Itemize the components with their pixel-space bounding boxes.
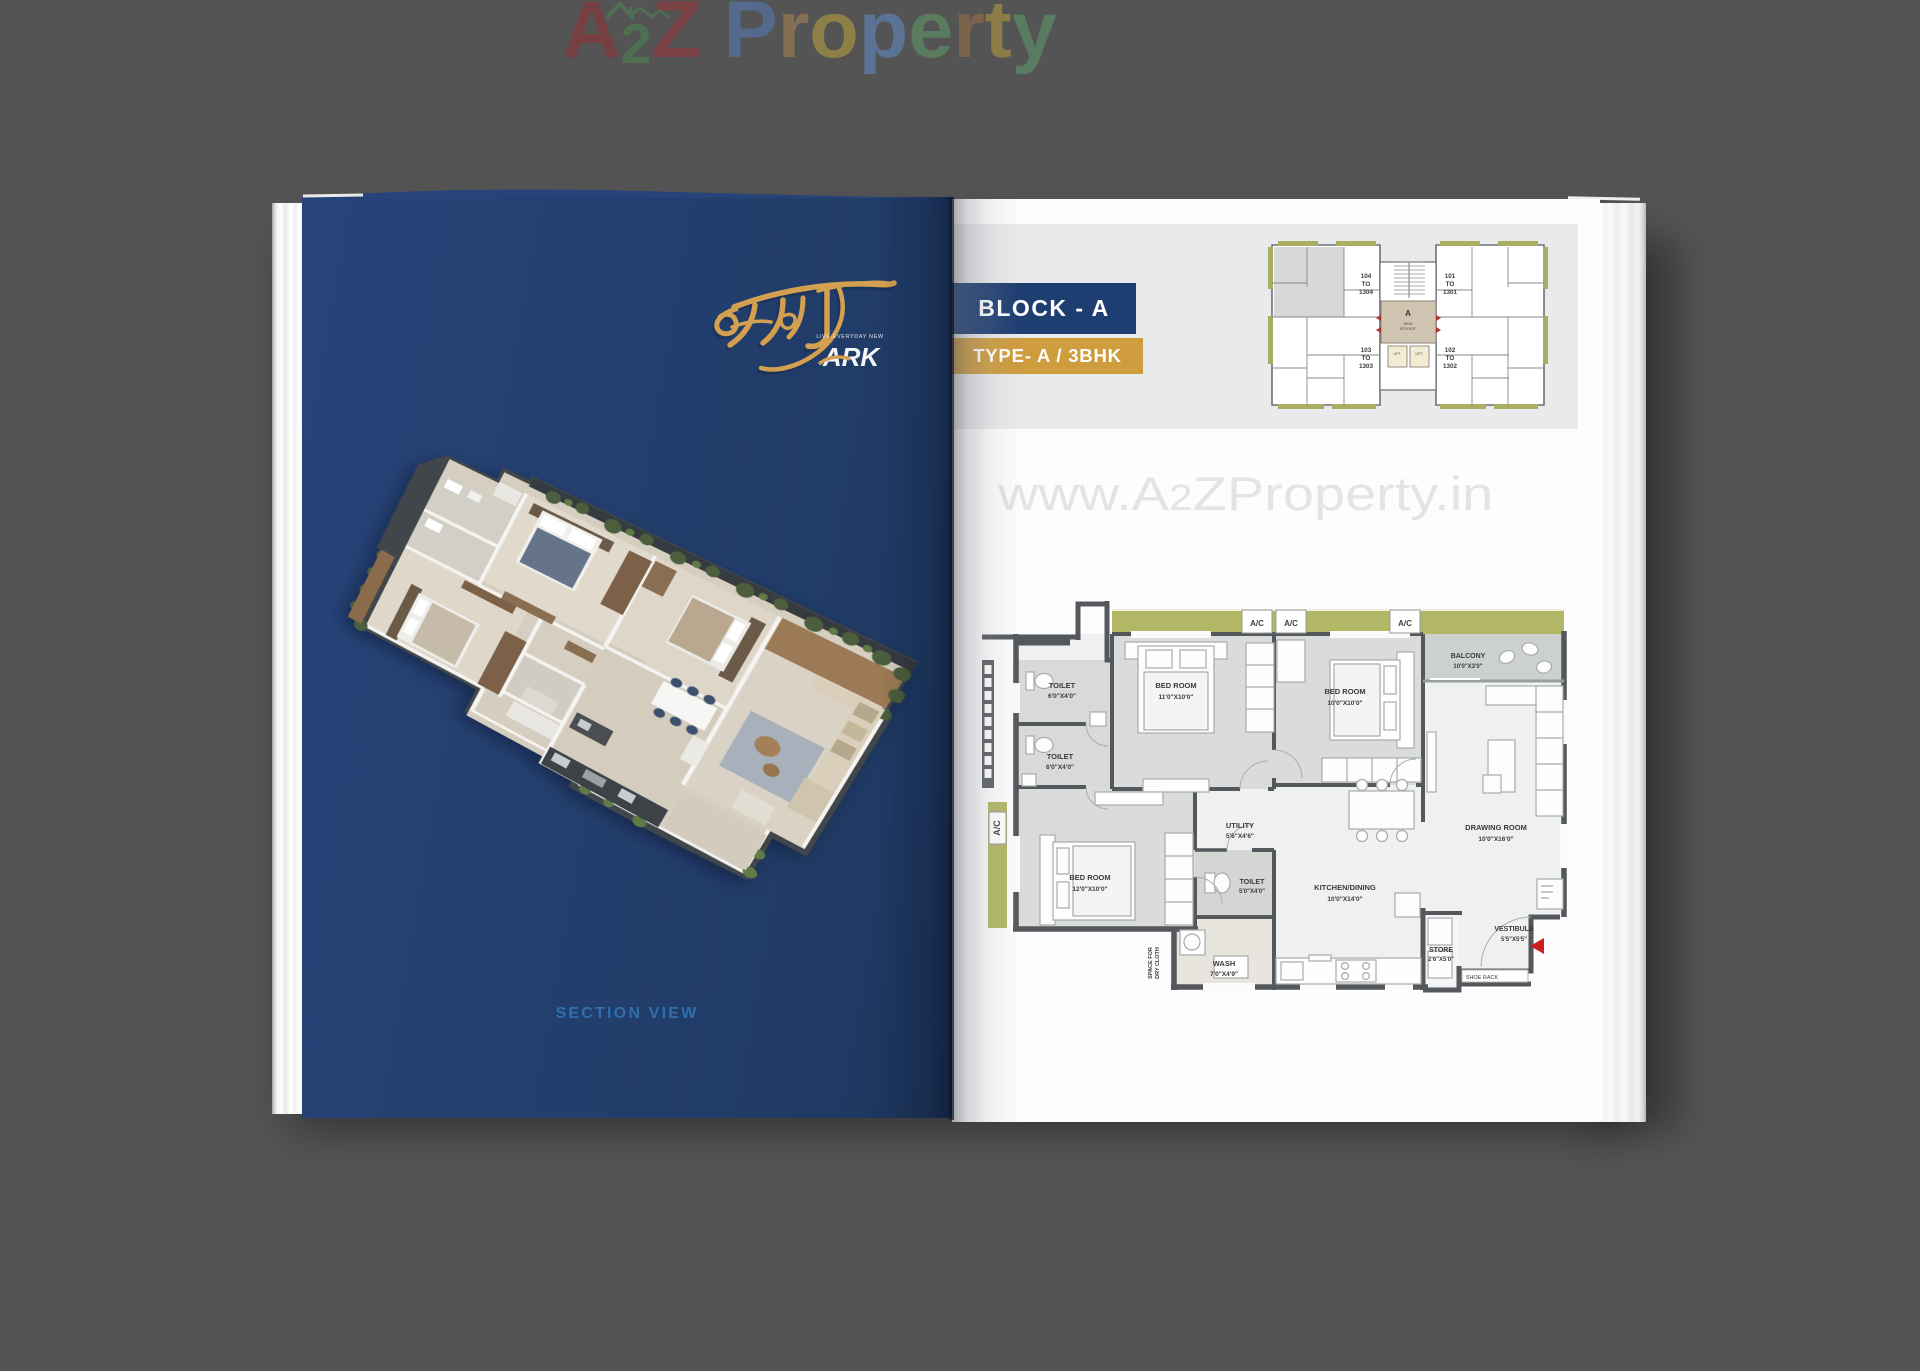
svg-text:2'6"X5'0": 2'6"X5'0" — [1428, 957, 1454, 963]
svg-text:9'0"X10'0": 9'0"X10'0" — [1400, 327, 1417, 331]
svg-text:6'0"X4'0": 6'0"X4'0" — [1048, 693, 1076, 700]
svg-text:A/C: A/C — [1398, 619, 1412, 628]
svg-text:TOILET: TOILET — [1049, 681, 1076, 690]
svg-text:WASH: WASH — [1213, 959, 1236, 968]
svg-text:103: 103 — [1361, 347, 1372, 354]
svg-text:10'0"X10'0": 10'0"X10'0" — [1327, 700, 1362, 707]
svg-text:104: 104 — [1361, 273, 1372, 280]
svg-text:7'0"X4'9": 7'0"X4'9" — [1210, 971, 1238, 978]
svg-text:LIVE EVERYDAY NEW: LIVE EVERYDAY NEW — [816, 334, 884, 340]
svg-text:TO: TO — [1446, 281, 1455, 288]
svg-text:SPACE FOR: SPACE FOR — [1148, 947, 1154, 979]
svg-text:5'6"X4'6": 5'6"X4'6" — [1226, 833, 1254, 840]
svg-text:BED ROOM: BED ROOM — [1155, 681, 1196, 690]
svg-text:10'0"X14'0": 10'0"X14'0" — [1327, 896, 1362, 903]
svg-text:KITCHEN/DINING: KITCHEN/DINING — [1314, 883, 1376, 892]
svg-text:A: A — [1405, 309, 1411, 318]
svg-text:1301: 1301 — [1443, 289, 1458, 296]
svg-text:TO: TO — [1446, 355, 1455, 362]
svg-text:BED ROOM: BED ROOM — [1324, 687, 1365, 696]
svg-text:BALCONY: BALCONY — [1451, 653, 1486, 660]
svg-text:TO: TO — [1362, 281, 1371, 288]
svg-text:LIFT: LIFT — [1416, 352, 1423, 356]
svg-text:VESTIBULE: VESTIBULE — [1494, 926, 1534, 933]
svg-text:10'0"X3'0": 10'0"X3'0" — [1453, 664, 1482, 670]
svg-text:5'0"X4'0": 5'0"X4'0" — [1239, 889, 1265, 895]
svg-text:TOILET: TOILET — [1240, 879, 1265, 886]
svg-text:DRAWING ROOM: DRAWING ROOM — [1465, 823, 1527, 832]
svg-text:5'5"X5'5": 5'5"X5'5" — [1501, 937, 1527, 943]
svg-text:1302: 1302 — [1443, 363, 1458, 370]
svg-text:6'0"X4'0": 6'0"X4'0" — [1046, 764, 1074, 771]
svg-text:LIFT: LIFT — [1394, 352, 1401, 356]
svg-text:TOILET: TOILET — [1047, 752, 1074, 761]
svg-text:A/C: A/C — [1250, 619, 1264, 628]
svg-text:UTILITY: UTILITY — [1226, 821, 1254, 830]
svg-text:12'0"X10'0": 12'0"X10'0" — [1072, 886, 1107, 893]
svg-text:11'0"X10'0": 11'0"X10'0" — [1159, 694, 1194, 701]
svg-text:101: 101 — [1445, 273, 1456, 280]
svg-text:1303: 1303 — [1359, 363, 1374, 370]
svg-text:A/C: A/C — [1284, 619, 1298, 628]
svg-text:HIGH: HIGH — [1404, 322, 1413, 326]
svg-text:SHOE RACK: SHOE RACK — [1466, 975, 1499, 981]
svg-text:BED ROOM: BED ROOM — [1069, 873, 1110, 882]
svg-text:TO: TO — [1362, 355, 1371, 362]
svg-text:10'0"X16'0": 10'0"X16'0" — [1478, 836, 1513, 843]
svg-text:DRY CLOTH: DRY CLOTH — [1155, 947, 1161, 979]
svg-text:1304: 1304 — [1359, 289, 1374, 296]
svg-text:102: 102 — [1445, 347, 1456, 354]
svg-text:STORE: STORE — [1429, 947, 1453, 954]
